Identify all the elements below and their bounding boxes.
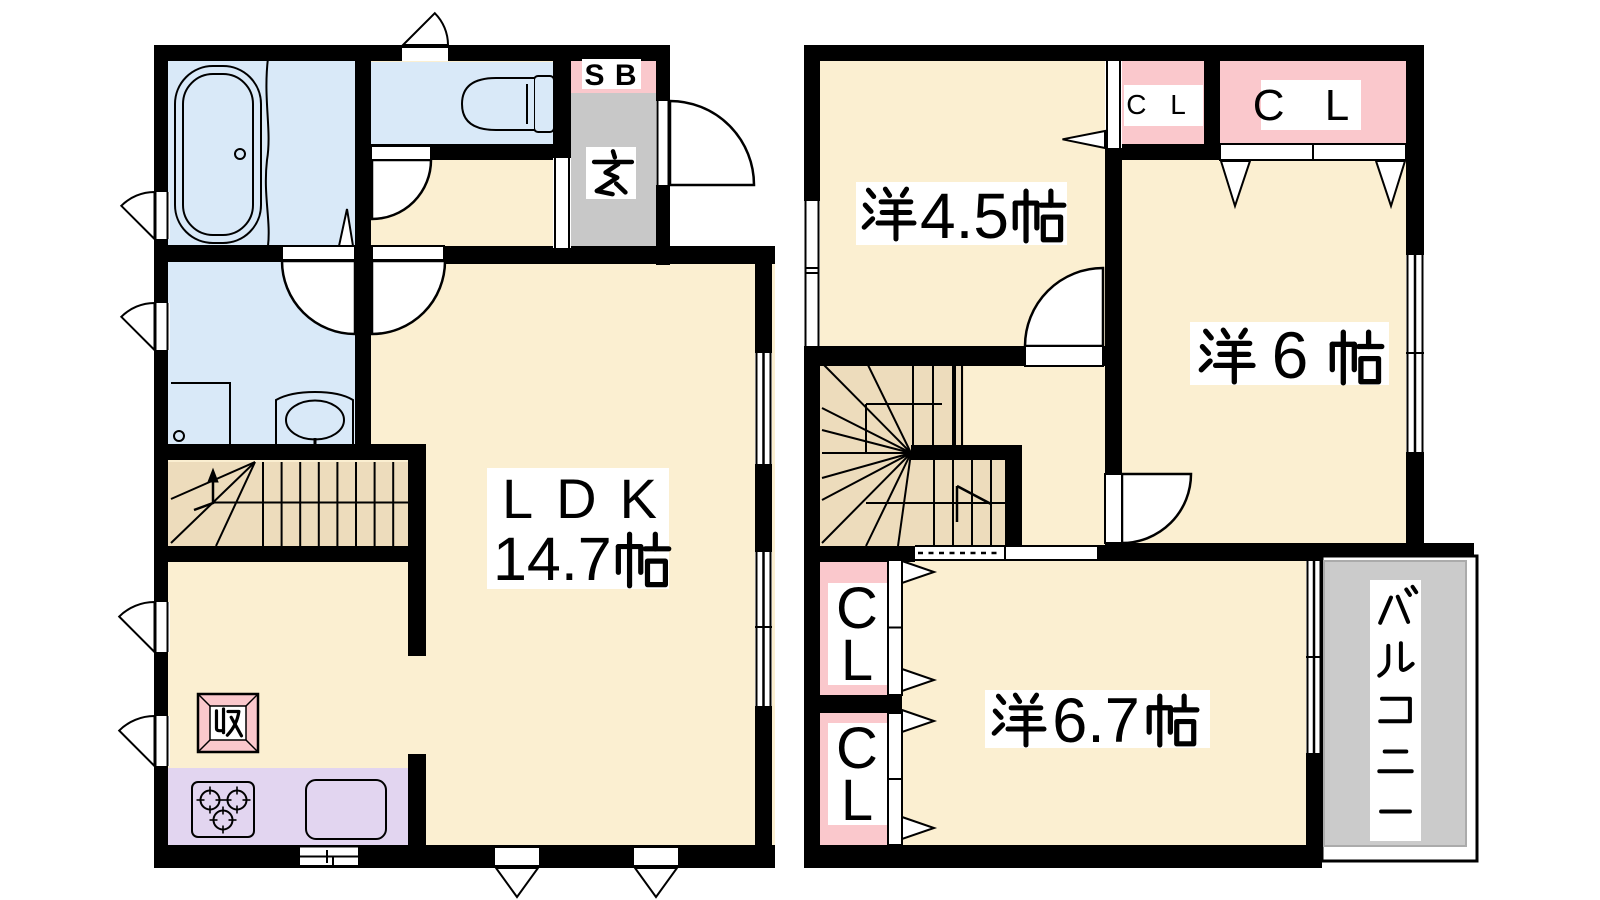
svg-text:L: L <box>841 768 873 833</box>
svg-text:L: L <box>841 628 873 693</box>
svg-text:C L: C L <box>1126 89 1194 120</box>
svg-text:C L: C L <box>1253 81 1363 130</box>
svg-text:14.7: 14.7 <box>493 525 612 593</box>
svg-text:4.5: 4.5 <box>920 180 1009 252</box>
svg-text:S B: S B <box>584 59 637 92</box>
svg-text:6: 6 <box>1272 318 1309 392</box>
svg-text:LDK: LDK <box>502 467 680 530</box>
svg-text:6.7: 6.7 <box>1052 686 1140 756</box>
